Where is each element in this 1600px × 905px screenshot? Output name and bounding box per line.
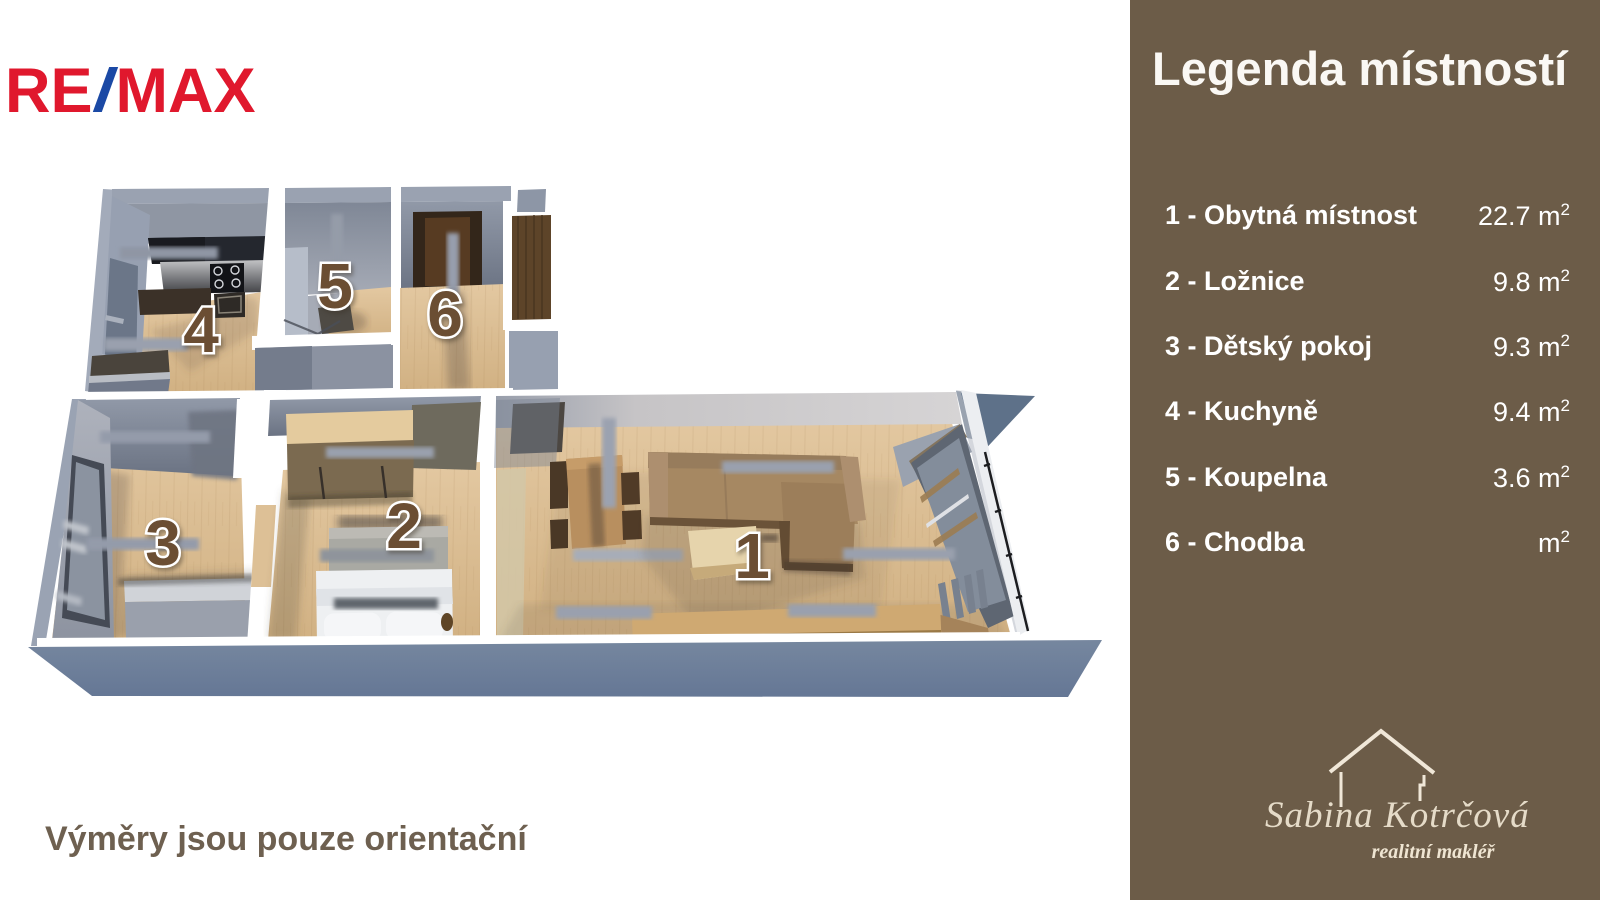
svg-text:6: 6 bbox=[427, 278, 463, 350]
svg-text:2: 2 bbox=[386, 490, 422, 562]
svg-text:3: 3 bbox=[145, 507, 181, 579]
svg-text:4: 4 bbox=[183, 294, 219, 366]
svg-text:5: 5 bbox=[317, 250, 353, 322]
svg-text:1: 1 bbox=[734, 520, 770, 592]
